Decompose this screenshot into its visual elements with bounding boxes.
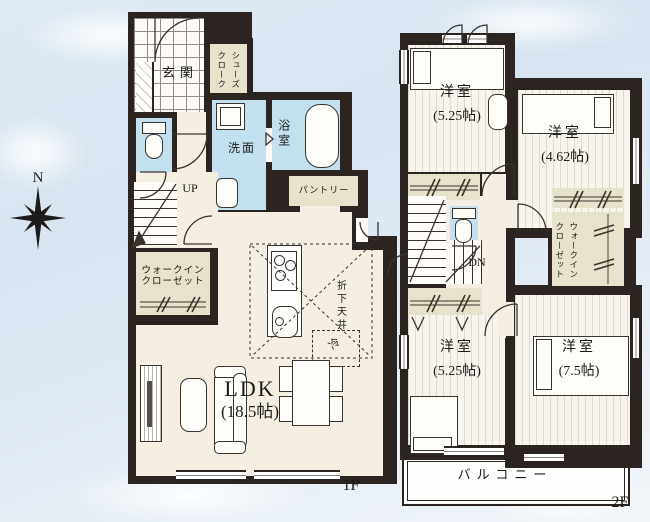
f1-toilet-door-arc	[140, 172, 166, 198]
bedroom-nw-label: 洋室	[428, 85, 486, 101]
bedroom-nw-size: (5.25帖)	[416, 109, 498, 125]
bedroom-se-size: (7.5帖)	[544, 364, 614, 380]
f1-wic-label: ウォークイン クローゼット	[138, 266, 208, 288]
f1-stairs-label: UP	[176, 182, 204, 196]
f1-floor-label: 1F	[334, 477, 368, 495]
entrance-label: 玄関	[154, 66, 206, 81]
f2-stairs-diagonal1	[410, 200, 444, 282]
f2-folding-door-mark	[412, 317, 424, 330]
f2-floor-label: 2F	[602, 494, 638, 512]
dropped-ceiling-outline	[250, 244, 372, 358]
compass-rose	[10, 186, 66, 250]
f1-wic-label-line2: クローゼット	[138, 277, 208, 288]
f2-bedroom-nw-door-arc	[482, 164, 514, 196]
f2-wic-label-left: クローゼット	[554, 217, 564, 283]
pantry-label: パントリー	[292, 185, 356, 195]
bath-folding-door-mark	[266, 133, 273, 145]
ldk-size-label: (18.5帖)	[202, 402, 298, 422]
floor-plan-canvas: N 玄関 シューズ クローク 洗面 浴室 パントリー UP ウォークイン クロー…	[0, 0, 650, 522]
bathroom-label: 浴室	[276, 108, 290, 160]
f2-folding-door-mark	[456, 317, 468, 330]
ldk-label: LDK	[214, 376, 286, 401]
bedroom-ne-size: (4.62帖)	[526, 150, 604, 166]
f1-hall-door-arc	[172, 134, 207, 169]
f2-bedroom-sw-door-arc	[485, 304, 517, 336]
bedroom-sw-size: (5.25帖)	[416, 364, 498, 380]
shoes-closet-label-left: クローク	[216, 47, 226, 93]
bedroom-ne-label: 洋室	[536, 126, 594, 142]
f2-casement-window-arc2	[468, 25, 487, 44]
f1-wic-label-line1: ウォークイン	[138, 266, 208, 277]
f2-bedroom-ne-door-arc	[518, 204, 546, 232]
f2-wic-label-right: ウォークイン	[568, 217, 578, 283]
f1-wic-hanger-marks	[157, 297, 200, 312]
bedroom-sw-label: 洋室	[428, 340, 486, 356]
f1-wic-door-arc	[184, 216, 212, 244]
entrance-door-arc	[155, 18, 199, 62]
f2-stairs-label: DN	[462, 256, 492, 270]
f2-west-door-arc	[388, 254, 408, 274]
f2-casement-window-arc1	[443, 25, 462, 44]
shoes-closet-label-right: シューズ	[230, 47, 240, 93]
compass-north-label: N	[26, 170, 50, 187]
f1-side-door-arc	[360, 222, 378, 240]
balcony-label: バルコニー	[430, 468, 580, 483]
f1-stairs-diagonal	[137, 184, 176, 244]
plan-linework	[0, 0, 650, 522]
washroom-label: 洗面	[220, 142, 264, 156]
bedroom-se-label: 洋室	[550, 340, 608, 356]
